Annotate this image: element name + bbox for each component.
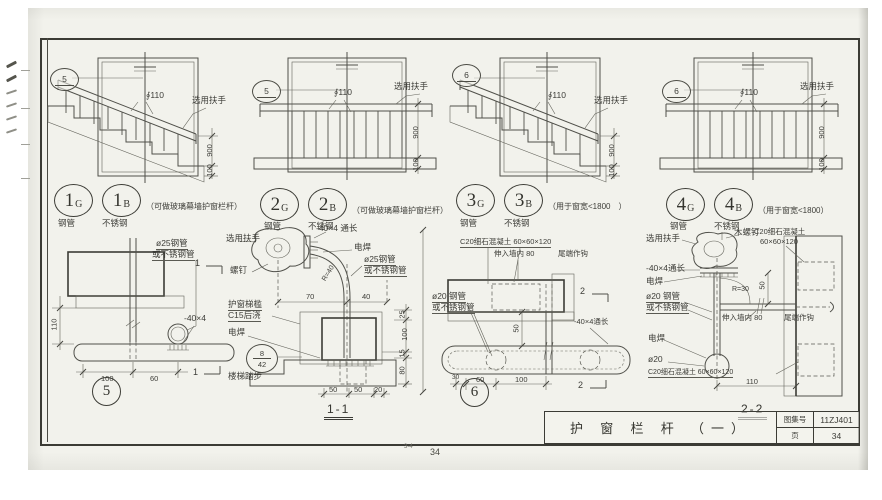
tag-caption-stainless: 不锈钢 bbox=[504, 219, 530, 229]
detail-5-drawing bbox=[46, 238, 238, 388]
window-outline bbox=[500, 58, 600, 176]
dim-900: 900 bbox=[817, 126, 826, 139]
page-label: 页 bbox=[777, 428, 814, 443]
bottom-rail-plan bbox=[442, 342, 630, 374]
detail-6-drawing bbox=[432, 238, 644, 394]
handrail-leader bbox=[802, 94, 826, 104]
dim-50b: 50 bbox=[354, 385, 362, 394]
dim-50: 50 bbox=[758, 281, 767, 289]
concrete-label-line2: 60×60×120 bbox=[760, 238, 798, 247]
hook-label: 尾端作钩 bbox=[558, 250, 588, 259]
handrail-leader bbox=[183, 108, 206, 128]
concrete-label: C20细石混凝土 60×60×120 bbox=[460, 238, 551, 248]
dim-25: 25 bbox=[398, 310, 407, 318]
weld-label-top: 电焊 bbox=[354, 243, 371, 253]
spacing-leaders bbox=[735, 100, 757, 112]
spacing-leaders bbox=[329, 100, 351, 112]
dim-100: 100 bbox=[607, 164, 616, 177]
detail-tags: 3G 3B bbox=[456, 184, 543, 217]
ref-bubble-8-42: 8 42 bbox=[246, 344, 278, 373]
margin-mark bbox=[6, 102, 17, 107]
sloped-handrail bbox=[460, 80, 598, 144]
window-outline bbox=[98, 58, 198, 176]
post-pipe bbox=[126, 238, 140, 360]
tag-caption-steel: 钢管 bbox=[58, 219, 75, 229]
usage-note: （用于窗宽<1800 ） bbox=[548, 202, 626, 211]
embedded-concrete-block bbox=[492, 284, 540, 310]
elevation-panel-3: 6 ∮110 选用扶手 900 100 3G 3B 钢管 不锈钢 （用于窗宽<1… bbox=[448, 52, 644, 232]
footer-page-number: 34 bbox=[430, 447, 440, 457]
stair-steps bbox=[450, 106, 606, 182]
tag-3G: 3G bbox=[456, 184, 495, 217]
pipe-label-line2: 或不锈钢管 bbox=[152, 250, 195, 261]
post bbox=[336, 52, 358, 180]
wall-run-pipe bbox=[720, 278, 834, 314]
spacing-label: ∮110 bbox=[740, 88, 758, 98]
ref-bottom: 42 bbox=[258, 360, 266, 369]
detail-5-number: 5 bbox=[92, 377, 121, 406]
dim-60: 60 bbox=[150, 374, 158, 383]
detail-ref-bubble: 5 bbox=[50, 68, 79, 91]
margin-mark bbox=[6, 61, 17, 69]
wall-hatch bbox=[68, 252, 164, 296]
pipe-dia-label: ø20 bbox=[648, 355, 663, 365]
spacing-label: ∮110 bbox=[146, 91, 164, 101]
elevation-panel-4: 6 ∮110 选用扶手 900 100 4G 4B 钢管 不锈钢 （用于窗宽<1… bbox=[652, 52, 848, 232]
handrail-profile bbox=[692, 232, 737, 268]
page-value: 34 bbox=[814, 428, 859, 443]
margin-handwriting-marks bbox=[6, 52, 30, 192]
handrail-profile bbox=[252, 228, 318, 272]
bottom-rail-bar bbox=[74, 344, 234, 361]
dim-900: 900 bbox=[607, 144, 616, 157]
usage-note: （用于窗宽<1800） bbox=[758, 206, 828, 215]
atlas-row: 图集号 11ZJ401 bbox=[777, 412, 859, 427]
dim-900: 900 bbox=[411, 126, 420, 139]
hook-label: 尾端作钩 bbox=[784, 314, 814, 323]
stair-steps bbox=[48, 106, 204, 182]
pipe-label-line2: 或不锈钢管 bbox=[646, 303, 689, 314]
tag-caption-stainless: 不锈钢 bbox=[102, 219, 128, 229]
handrail-label: 选用扶手 bbox=[192, 96, 226, 106]
dim-50a: 50 bbox=[329, 385, 337, 394]
leaders bbox=[468, 248, 608, 356]
tag-1G: 1G bbox=[54, 184, 93, 217]
mortar-stipple-right bbox=[552, 274, 574, 320]
dim-110: 110 bbox=[746, 377, 758, 386]
handrail-label: 选用扶手 bbox=[226, 234, 260, 244]
detail-6-panel: C20细石混凝土 60×60×120 伸入墙内 80 尾端作钩 ø20 钢管 或… bbox=[432, 238, 644, 410]
post-cast-pocket bbox=[300, 312, 382, 384]
spacing-leaders bbox=[533, 102, 555, 114]
detail-ref-number: 6 bbox=[674, 86, 679, 96]
detail-ref-number: 5 bbox=[62, 74, 67, 84]
handrail-leader bbox=[585, 108, 608, 128]
weld-label-top: 电焊 bbox=[646, 277, 663, 287]
handrail-leader bbox=[396, 94, 420, 104]
spacing-label: ∮110 bbox=[334, 88, 352, 98]
section-cut-brackets bbox=[204, 266, 222, 374]
spacing-leaders bbox=[131, 102, 153, 114]
tag-1B: 1B bbox=[102, 184, 141, 217]
weld-label-bottom: 电焊 bbox=[648, 334, 665, 344]
tag-3B: 3B bbox=[504, 184, 543, 217]
margin-tick bbox=[21, 108, 30, 109]
ref-top: 8 bbox=[260, 349, 264, 358]
embed-label: 伸入墙内 80 bbox=[722, 314, 762, 323]
concrete-bottom-label: C20细石混凝土 60×60×120 bbox=[648, 369, 733, 378]
margin-mark bbox=[6, 89, 17, 94]
dim-100: 100 bbox=[205, 164, 214, 177]
page-row: 页 34 bbox=[777, 427, 859, 443]
handrail-label: 选用扶手 bbox=[594, 96, 628, 106]
tag-caption-steel: 钢管 bbox=[460, 219, 477, 229]
flat-bar-label: -40×4 bbox=[184, 314, 206, 324]
pipe-label-line2: 或不锈钢管 bbox=[364, 266, 407, 277]
dim-100: 100 bbox=[411, 158, 420, 171]
concrete-label-line1: C20细石混凝土 bbox=[754, 228, 805, 237]
section-1-1-panel: 选用扶手 -40×4 通长 电焊 ø25钢管 或不锈钢管 螺钉 R=40 70 … bbox=[226, 224, 432, 422]
dim-100: 100 bbox=[400, 328, 409, 341]
post bbox=[742, 52, 764, 180]
atlas-number-label: 图集号 bbox=[777, 412, 814, 427]
usage-note: （可做玻璃幕墙护窗栏杆） bbox=[352, 206, 448, 215]
tag-4B: 4B bbox=[714, 188, 753, 221]
tag-4G: 4G bbox=[666, 188, 705, 221]
floor-slab bbox=[254, 158, 436, 169]
section-title-1-1: 1-1 bbox=[324, 402, 353, 418]
concrete-block-top bbox=[798, 262, 834, 290]
detail-ref-bubble: 6 bbox=[452, 64, 481, 87]
handrail-label: 选用扶手 bbox=[394, 82, 428, 92]
dim-20: 20 bbox=[374, 385, 382, 394]
radius-label: R=30 bbox=[732, 286, 749, 293]
dim-50: 50 bbox=[512, 324, 521, 332]
dim-40: 40 bbox=[362, 292, 370, 301]
section-mark-1-top: 1 bbox=[195, 258, 200, 268]
handrail-label: 选用扶手 bbox=[800, 82, 834, 92]
sloped-handrail bbox=[58, 80, 196, 144]
usage-note: （可做玻璃幕墙护窗栏杆） bbox=[146, 202, 242, 211]
post-pipe bbox=[714, 258, 720, 380]
detail-tags: 1G 1B bbox=[54, 184, 141, 217]
dim-70: 70 bbox=[306, 292, 314, 301]
dim-110: 110 bbox=[49, 319, 58, 331]
sheet-title: 护 窗 栏 杆 （一） bbox=[545, 412, 776, 443]
margin-mark bbox=[6, 75, 17, 83]
detail-ref-bubble: 5 bbox=[252, 80, 281, 103]
footer-handwritten-mark: 3-4 bbox=[404, 444, 413, 450]
margin-tick bbox=[21, 178, 30, 179]
margin-mark bbox=[6, 115, 17, 120]
detail-ref-number: 5 bbox=[264, 86, 269, 96]
post-pipe bbox=[546, 284, 552, 374]
pipe-section bbox=[167, 324, 189, 350]
tag-2B: 2B bbox=[308, 188, 347, 221]
section-mark-2-bottom: 2 bbox=[578, 380, 583, 390]
section-mark-1-bottom: 1 bbox=[193, 367, 198, 377]
flat-bar-and-weld bbox=[700, 268, 738, 277]
dim-15: 15 bbox=[398, 349, 407, 357]
margin-mark bbox=[6, 128, 17, 133]
flat-bar-label: -40×4通长 bbox=[574, 318, 608, 327]
dim-30: 30 bbox=[452, 374, 459, 381]
detail-tags: 2G 2B bbox=[260, 188, 347, 221]
screw-label: 螺钉 bbox=[230, 266, 247, 276]
stair-tread-label: 楼梯踏步 bbox=[228, 372, 262, 382]
detail-ref-bubble: 6 bbox=[662, 80, 691, 103]
spacing-label: ∮110 bbox=[548, 91, 566, 101]
title-block: 护 窗 栏 杆 （一） 图集号 11ZJ401 页 34 bbox=[544, 411, 860, 444]
margin-tick bbox=[21, 70, 30, 71]
detail-6-number: 6 bbox=[460, 378, 489, 407]
dim-100: 100 bbox=[817, 158, 826, 171]
flat-bar-label: -40×4通长 bbox=[646, 264, 685, 274]
dim-100: 100 bbox=[515, 375, 528, 384]
curved-post-pipe bbox=[278, 246, 350, 392]
detail-tags: 4G 4B bbox=[666, 188, 753, 221]
sill-label-line2: C15后浇 bbox=[228, 311, 261, 322]
elevation-panel-1: 5 ∮110 选用扶手 900 100 1G 1B 钢管 不锈钢 （可做玻璃幕墙… bbox=[46, 52, 242, 232]
concrete-block-bottom bbox=[798, 344, 834, 376]
margin-tick bbox=[21, 144, 30, 145]
floor-slab bbox=[660, 158, 842, 169]
tag-2G: 2G bbox=[260, 188, 299, 221]
elevation-panel-2: 5 ∮110 选用扶手 900 100 2G 2B 钢管 不锈钢 （可做玻璃幕墙… bbox=[246, 52, 442, 232]
dim-80: 80 bbox=[398, 366, 407, 374]
section-mark-2-top: 2 bbox=[580, 286, 585, 296]
detail-ref-number: 6 bbox=[464, 70, 469, 80]
section-2-2-panel: 选用扶手 木螺钉 C20细石混凝土 60×60×120 -40×4通长 电焊 R… bbox=[646, 228, 854, 420]
detail-5-panel: ø25钢管 或不锈钢管 -40×4 110 100 60 1 1 5 bbox=[46, 238, 238, 416]
title-block-right: 图集号 11ZJ401 页 34 bbox=[776, 412, 859, 443]
handrail-label: 选用扶手 bbox=[646, 234, 680, 244]
pipe-label-line2: 或不锈钢管 bbox=[432, 303, 475, 314]
dim-900: 900 bbox=[205, 144, 214, 157]
flat-bar-label: -40×4 通长 bbox=[316, 224, 357, 234]
dim-70-40 bbox=[275, 280, 390, 305]
weld-label-bottom: 电焊 bbox=[228, 328, 245, 338]
embed-label: 伸入墙内 80 bbox=[494, 250, 534, 259]
atlas-number-value: 11ZJ401 bbox=[814, 412, 859, 427]
